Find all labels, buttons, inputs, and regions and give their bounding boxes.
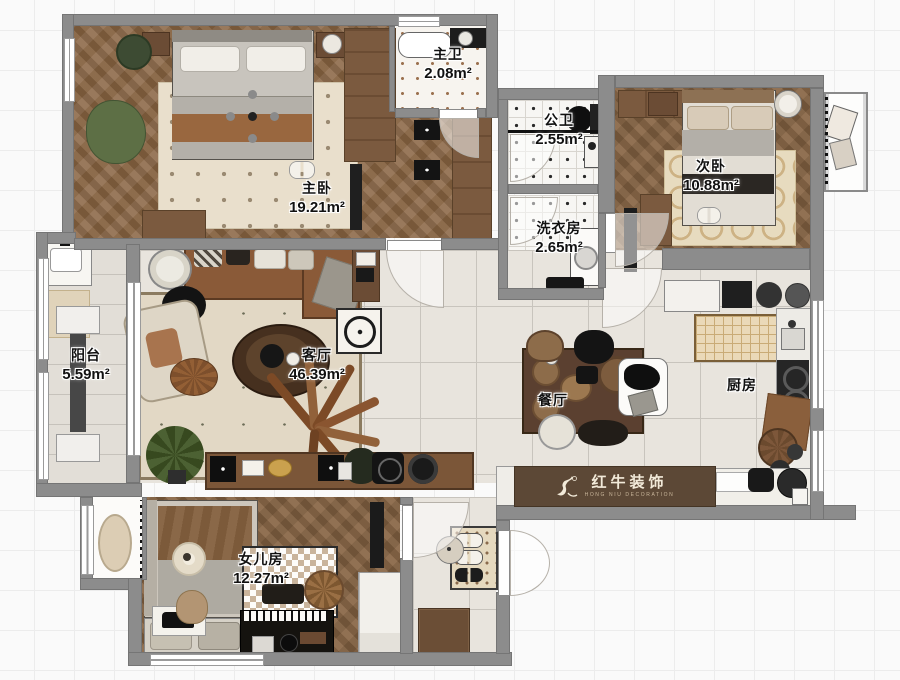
potted-plant xyxy=(116,34,152,70)
curtain-fringe xyxy=(825,96,828,184)
sliding-door-balcony xyxy=(127,282,141,456)
floor-cushion xyxy=(262,584,304,604)
dining-chair-dark xyxy=(574,330,614,364)
room-name: 厨房 xyxy=(727,375,757,395)
photo-frame xyxy=(242,460,264,476)
slippers-dark xyxy=(455,568,483,582)
record-disc xyxy=(378,458,402,482)
wall xyxy=(498,88,508,295)
room-area: 2.08m² xyxy=(424,65,472,82)
room-name: 次卧 xyxy=(696,156,726,176)
ceiling-fan-icon xyxy=(248,112,257,121)
brand-watermark: 红牛装饰 HONG NIU DECORATION xyxy=(514,466,716,507)
bed-second-blanket xyxy=(682,130,774,156)
bench xyxy=(142,210,206,240)
room-label-living-room: 客厅 46.39m² xyxy=(289,345,345,383)
wall xyxy=(441,238,500,250)
piano-keys xyxy=(244,611,328,621)
round-speaker xyxy=(408,454,438,484)
room-name: 客厅 xyxy=(302,345,332,365)
window xyxy=(38,258,49,360)
wall xyxy=(598,213,606,288)
kitchen-appliance xyxy=(785,283,810,308)
door-leaf-daughter-room xyxy=(402,505,413,561)
room-area: 2.55m² xyxy=(535,131,583,148)
window xyxy=(64,38,75,102)
room-name: 洗衣房 xyxy=(537,218,582,238)
wall xyxy=(598,75,615,213)
fruit-bowl xyxy=(268,459,292,477)
stool xyxy=(414,160,440,180)
wall xyxy=(496,592,510,654)
wall xyxy=(400,497,413,505)
stove-burner xyxy=(783,366,809,392)
bed-master-headboard xyxy=(172,30,312,42)
pillow xyxy=(687,106,729,130)
room-area: 19.21m² xyxy=(289,199,345,216)
wall xyxy=(36,483,142,497)
wall xyxy=(498,288,604,300)
room-name: 餐厅 xyxy=(538,390,568,410)
dining-chair xyxy=(526,330,564,362)
room-label-dining-room: 餐厅 xyxy=(538,390,568,410)
window xyxy=(398,16,440,27)
dining-chair-dark xyxy=(578,420,628,446)
shelf xyxy=(300,632,326,644)
slippers xyxy=(698,208,720,223)
plant-pot xyxy=(338,462,352,480)
faucet-icon xyxy=(788,320,796,328)
window xyxy=(812,300,824,409)
pillow xyxy=(288,250,314,270)
pot xyxy=(748,468,774,492)
wall xyxy=(400,558,413,654)
entry-side-cabinet xyxy=(496,466,515,507)
clock-face xyxy=(344,316,376,348)
room-label-kitchen: 厨房 xyxy=(727,375,757,395)
room-area: 2.65m² xyxy=(535,239,583,256)
wall xyxy=(477,108,486,118)
wall xyxy=(395,108,439,118)
side-table xyxy=(148,248,192,290)
wicker-pouf xyxy=(304,570,344,610)
centerpiece xyxy=(576,366,598,384)
fan-decor xyxy=(774,90,802,118)
baywindow-cushion xyxy=(98,514,132,572)
room-name: 主卧 xyxy=(302,178,332,198)
room-label-guest-bath: 公卫 2.55m² xyxy=(535,110,583,148)
wall xyxy=(508,184,598,194)
wall xyxy=(498,88,605,100)
radiator xyxy=(350,164,362,230)
brand-text-block: 红牛装饰 HONG NIU DECORATION xyxy=(585,475,675,498)
drying-rack-bracket xyxy=(56,434,100,462)
wall xyxy=(74,238,386,250)
floorplan-canvas: 主卧 19.21m² 主卫 2.08m² 公卫 2.55m² 洗衣房 2.65m… xyxy=(0,0,900,680)
table-lamp xyxy=(322,34,342,54)
shoe-cabinet xyxy=(418,608,470,654)
wok xyxy=(624,364,660,390)
wall xyxy=(662,248,810,270)
window xyxy=(812,430,824,492)
bull-logo-icon xyxy=(556,475,578,499)
bed-second-headboard xyxy=(682,90,774,103)
stool-dot xyxy=(447,547,451,551)
room-area: 10.88m² xyxy=(683,177,739,194)
radiator xyxy=(370,502,384,568)
room-name: 主卫 xyxy=(433,44,463,64)
books xyxy=(356,252,376,266)
window xyxy=(150,654,264,666)
stool xyxy=(414,120,440,140)
room-label-laundry: 洗衣房 2.65m² xyxy=(535,218,583,256)
entry-door-arc xyxy=(510,530,550,596)
record-disc xyxy=(280,634,298,652)
room-area: 5.59m² xyxy=(62,366,110,383)
slippers xyxy=(290,162,314,178)
books xyxy=(356,268,374,282)
pillow xyxy=(194,247,222,267)
potted-plant xyxy=(86,100,146,164)
room-label-master-bedroom: 主卧 19.21m² xyxy=(289,178,345,216)
pillow xyxy=(731,106,773,130)
room-label-balcony: 阳台 5.59m² xyxy=(62,345,110,383)
wall xyxy=(486,14,498,118)
wall xyxy=(389,26,395,112)
dining-stool xyxy=(538,414,576,450)
entry-door-leaf xyxy=(498,530,510,596)
room-area: 46.39m² xyxy=(289,366,345,383)
brand-name-cn: 红牛装饰 xyxy=(591,475,667,490)
flower-pillow-center xyxy=(183,553,191,561)
kitchen-appliance xyxy=(756,282,782,308)
wall xyxy=(615,75,824,88)
fridge xyxy=(664,280,720,312)
table-decor xyxy=(260,344,284,368)
closet xyxy=(358,572,404,654)
room-label-daughter-room: 女儿房 12.27m² xyxy=(233,549,289,587)
plant-pot xyxy=(168,470,186,484)
brand-name-en: HONG NIU DECORATION xyxy=(585,493,675,498)
wall xyxy=(142,497,147,580)
room-area: 12.27m² xyxy=(233,570,289,587)
kitchen-appliance xyxy=(722,281,752,308)
room-name: 公卫 xyxy=(544,110,574,130)
sink-basin xyxy=(50,248,82,272)
room-label-second-bedroom: 次卧 10.88m² xyxy=(683,156,739,194)
teddy-bear xyxy=(176,590,208,624)
window xyxy=(38,372,49,480)
room-label-master-bath: 主卫 2.08m² xyxy=(424,44,472,82)
window xyxy=(81,505,94,575)
pouf xyxy=(170,358,218,396)
pillow xyxy=(254,249,286,269)
pillow xyxy=(180,46,240,72)
room-name: 阳台 xyxy=(71,345,101,365)
potted-plant xyxy=(787,444,803,460)
kettle xyxy=(792,488,808,505)
bed-master-throw xyxy=(172,114,312,142)
pillow xyxy=(246,46,306,72)
nightstand xyxy=(648,92,678,116)
wall xyxy=(496,505,856,520)
kitchen-sink xyxy=(781,328,805,350)
room-name: 女儿房 xyxy=(239,549,284,569)
speaker xyxy=(210,456,236,482)
kitchen-mat xyxy=(694,314,778,362)
faucet-icon xyxy=(588,142,596,150)
drying-rack-bracket xyxy=(56,306,100,334)
